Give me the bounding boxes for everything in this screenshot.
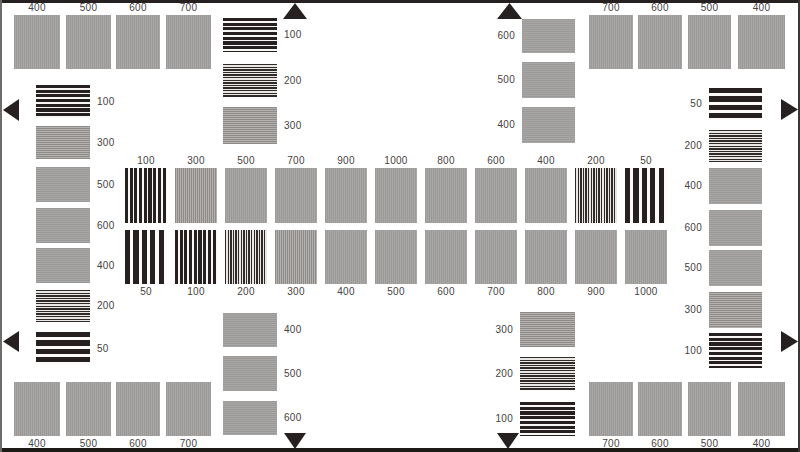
center-top-row-block-500 <box>225 168 267 223</box>
top-center-right-column-block-600 <box>522 19 575 53</box>
left-marker-top-triangle-icon <box>3 99 19 121</box>
left-column-block-400 <box>36 248 90 283</box>
right-marker-bottom-triangle-icon <box>781 331 798 352</box>
left-column-block-50 <box>36 332 90 365</box>
top-left-corner-label-700: 700 <box>146 2 231 14</box>
right-column-block-500 <box>709 250 762 286</box>
center-bottom-row-block-900 <box>575 230 617 284</box>
bottom-right-corner-block-700 <box>589 382 633 436</box>
left-column-label-200: 200 <box>97 300 141 312</box>
center-bottom-row-block-300 <box>275 230 317 284</box>
left-column-label-100: 100 <box>97 96 141 108</box>
top-center-right-column-block-400 <box>522 107 575 143</box>
center-bottom-row-block-800 <box>525 230 567 284</box>
left-column-label-300: 300 <box>97 137 141 149</box>
bottom-center-left-column-block-600 <box>223 401 277 435</box>
top-right-corner-block-400 <box>738 15 785 69</box>
left-column-block-200 <box>36 290 90 322</box>
right-column-block-600 <box>709 210 762 246</box>
top-right-corner-block-500 <box>688 15 731 69</box>
bottom-right-corner-block-600 <box>638 382 682 436</box>
center-bottom-row-block-1000 <box>625 230 667 284</box>
top-center-right-column-label-400: 400 <box>471 119 515 131</box>
bottom-center-right-column-block-200 <box>520 357 575 390</box>
top-center-left-column-label-200: 200 <box>284 75 328 87</box>
resolution-test-chart: 4005006007007006005004004005006007007006… <box>0 0 800 452</box>
center-bottom-row-block-100 <box>175 230 217 284</box>
bottom-right-corner-label-400: 400 <box>718 438 800 450</box>
bottom-left-corner-block-500 <box>66 382 111 436</box>
frame-left-edge <box>0 0 2 452</box>
top-left-corner-block-700 <box>166 15 211 69</box>
right-marker-top-triangle-icon <box>781 99 798 120</box>
top-center-right-column-label-600: 600 <box>471 30 515 42</box>
top-center-left-column-label-300: 300 <box>284 120 328 132</box>
right-column-label-100: 100 <box>658 345 702 357</box>
left-column-block-100 <box>36 85 90 118</box>
bottom-center-right-column-block-100 <box>520 402 575 436</box>
center-bottom-row-label-1000: 1000 <box>605 286 687 298</box>
top-right-corner-block-700 <box>589 15 633 69</box>
right-column-label-300: 300 <box>658 304 702 316</box>
bottom-center-left-column-block-500 <box>223 356 277 391</box>
bottom-center-right-column-block-300 <box>520 312 575 347</box>
right-column-block-200 <box>709 130 762 162</box>
center-bottom-row-block-200 <box>225 230 267 284</box>
center-top-row-block-900 <box>325 168 367 223</box>
center-top-row-block-1000 <box>375 168 417 223</box>
center-top-row-block-50 <box>625 168 667 223</box>
right-column-label-200: 200 <box>658 140 702 152</box>
top-center-left-column-block-200 <box>223 64 277 97</box>
center-top-row-block-400 <box>525 168 567 223</box>
center-top-row-block-600 <box>475 168 517 223</box>
right-column-label-50: 50 <box>658 98 702 110</box>
bottom-marker-left-triangle-icon <box>284 433 306 449</box>
right-column-block-100 <box>709 333 762 368</box>
center-bottom-row-block-50 <box>125 230 167 284</box>
bottom-left-corner-block-600 <box>116 382 160 436</box>
center-top-row-block-200 <box>575 168 617 223</box>
center-top-row-block-100 <box>125 168 167 223</box>
center-top-row-block-700 <box>275 168 317 223</box>
top-marker-right-triangle-icon <box>497 3 522 19</box>
center-bottom-row-block-500 <box>375 230 417 284</box>
bottom-marker-right-triangle-icon <box>497 433 519 449</box>
right-column-block-400 <box>709 168 762 204</box>
top-center-left-column-label-100: 100 <box>284 29 328 41</box>
top-left-corner-block-600 <box>116 15 160 69</box>
bottom-right-corner-block-400 <box>738 382 785 436</box>
center-top-row-block-300 <box>175 168 217 223</box>
bottom-center-left-column-block-400 <box>223 313 277 347</box>
left-column-label-50: 50 <box>97 343 141 355</box>
bottom-center-left-column-label-600: 600 <box>284 412 328 424</box>
top-left-corner-block-500 <box>66 15 111 69</box>
bottom-center-right-column-label-300: 300 <box>469 324 513 336</box>
center-bottom-row-block-700 <box>475 230 517 284</box>
top-center-left-column-block-100 <box>223 18 277 52</box>
bottom-center-right-column-label-200: 200 <box>469 368 513 380</box>
top-center-left-column-block-300 <box>223 107 277 144</box>
left-column-block-600 <box>36 208 90 243</box>
left-column-block-300 <box>36 126 90 159</box>
right-column-block-300 <box>709 292 762 328</box>
bottom-center-right-column-label-100: 100 <box>469 413 513 425</box>
bottom-left-corner-block-700 <box>166 382 211 436</box>
top-right-corner-block-600 <box>638 15 682 69</box>
center-top-row-label-50: 50 <box>605 155 687 167</box>
left-marker-bottom-triangle-icon <box>3 331 19 352</box>
top-center-right-column-block-500 <box>522 62 575 98</box>
top-left-corner-block-400 <box>14 15 60 69</box>
bottom-center-left-column-label-500: 500 <box>284 368 328 380</box>
bottom-center-left-column-label-400: 400 <box>284 324 328 336</box>
center-top-row-block-800 <box>425 168 467 223</box>
top-right-corner-label-400: 400 <box>718 2 800 14</box>
bottom-left-corner-label-700: 700 <box>146 438 231 450</box>
bottom-left-corner-block-400 <box>14 382 60 436</box>
bottom-right-corner-block-500 <box>688 382 731 436</box>
right-column-block-50 <box>709 88 762 120</box>
left-column-block-500 <box>36 167 90 202</box>
center-bottom-row-block-400 <box>325 230 367 284</box>
top-marker-left-triangle-icon <box>283 3 307 19</box>
center-bottom-row-block-600 <box>425 230 467 284</box>
top-center-right-column-label-500: 500 <box>471 74 515 86</box>
